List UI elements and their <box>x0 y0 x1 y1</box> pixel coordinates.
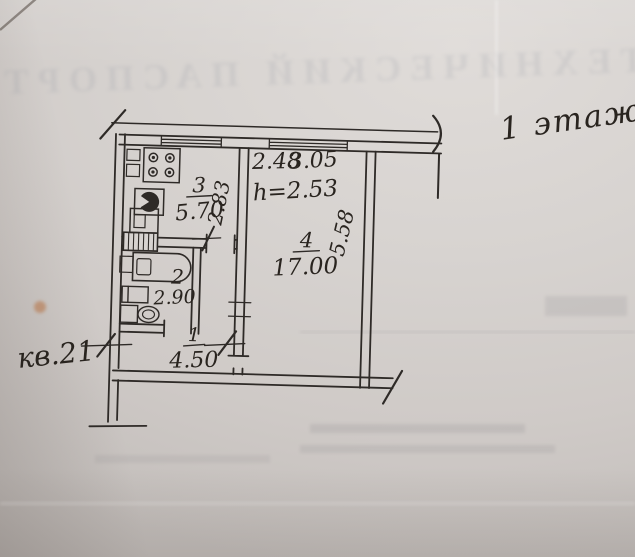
paper-artifacts <box>0 0 635 505</box>
room-hall-number: 1 <box>188 324 201 346</box>
plan-group: 2.48 3.05 h=2.53 2.83 5.58 3 5.70 4 17.0… <box>79 106 442 436</box>
ceiling-height-note: h=2.53 <box>252 175 339 206</box>
bleed-text-row <box>95 455 270 463</box>
apartment-note: кв.21 <box>16 334 97 375</box>
dim-living-depth: 5.58 <box>325 207 359 258</box>
stain <box>34 301 46 313</box>
bleed-text-row <box>310 424 525 433</box>
dim-tick-right-arc <box>432 116 441 152</box>
bleed-line <box>300 331 635 333</box>
right-wall <box>360 151 376 388</box>
kitchen-sink-icon <box>134 188 164 215</box>
bottom-wall <box>113 370 393 388</box>
vent-shaft-icon <box>123 232 157 251</box>
vertical-crease <box>495 0 498 115</box>
room-living-number: 4 <box>299 228 314 252</box>
room-hall-area: 4.50 <box>168 348 219 374</box>
horizontal-crease <box>0 502 635 505</box>
floor-note: 1 этаж <box>498 92 635 147</box>
living-room-wall <box>228 148 254 375</box>
bleed-text-row <box>300 445 555 453</box>
stove-icon <box>126 147 180 182</box>
room-kitchen-number: 3 <box>192 173 206 197</box>
corner-crease <box>0 0 37 30</box>
washbasin-icon <box>122 286 148 303</box>
living-room-wall-ticks <box>228 302 250 317</box>
floor-plan-drawing: 2.48 3.05 h=2.53 2.83 5.58 3 5.70 4 17.0… <box>0 0 635 557</box>
bleed-smudge <box>545 296 627 316</box>
adjacent-wall-stub <box>438 154 439 198</box>
room-bathroom-number: 2 <box>170 265 184 289</box>
scanned-floor-plan-page: { "page": { "floor_note": "1 этаж", "apa… <box>0 0 635 557</box>
dim-living-width: 3.05 <box>288 147 338 175</box>
plan-labels: 2.48 3.05 h=2.53 2.83 5.58 3 5.70 4 17.0… <box>150 142 361 379</box>
room-bathroom-area: 2.90 <box>152 286 196 310</box>
room-kitchen-area: 5.70 <box>174 197 225 226</box>
room-living-area: 17.00 <box>272 253 339 282</box>
